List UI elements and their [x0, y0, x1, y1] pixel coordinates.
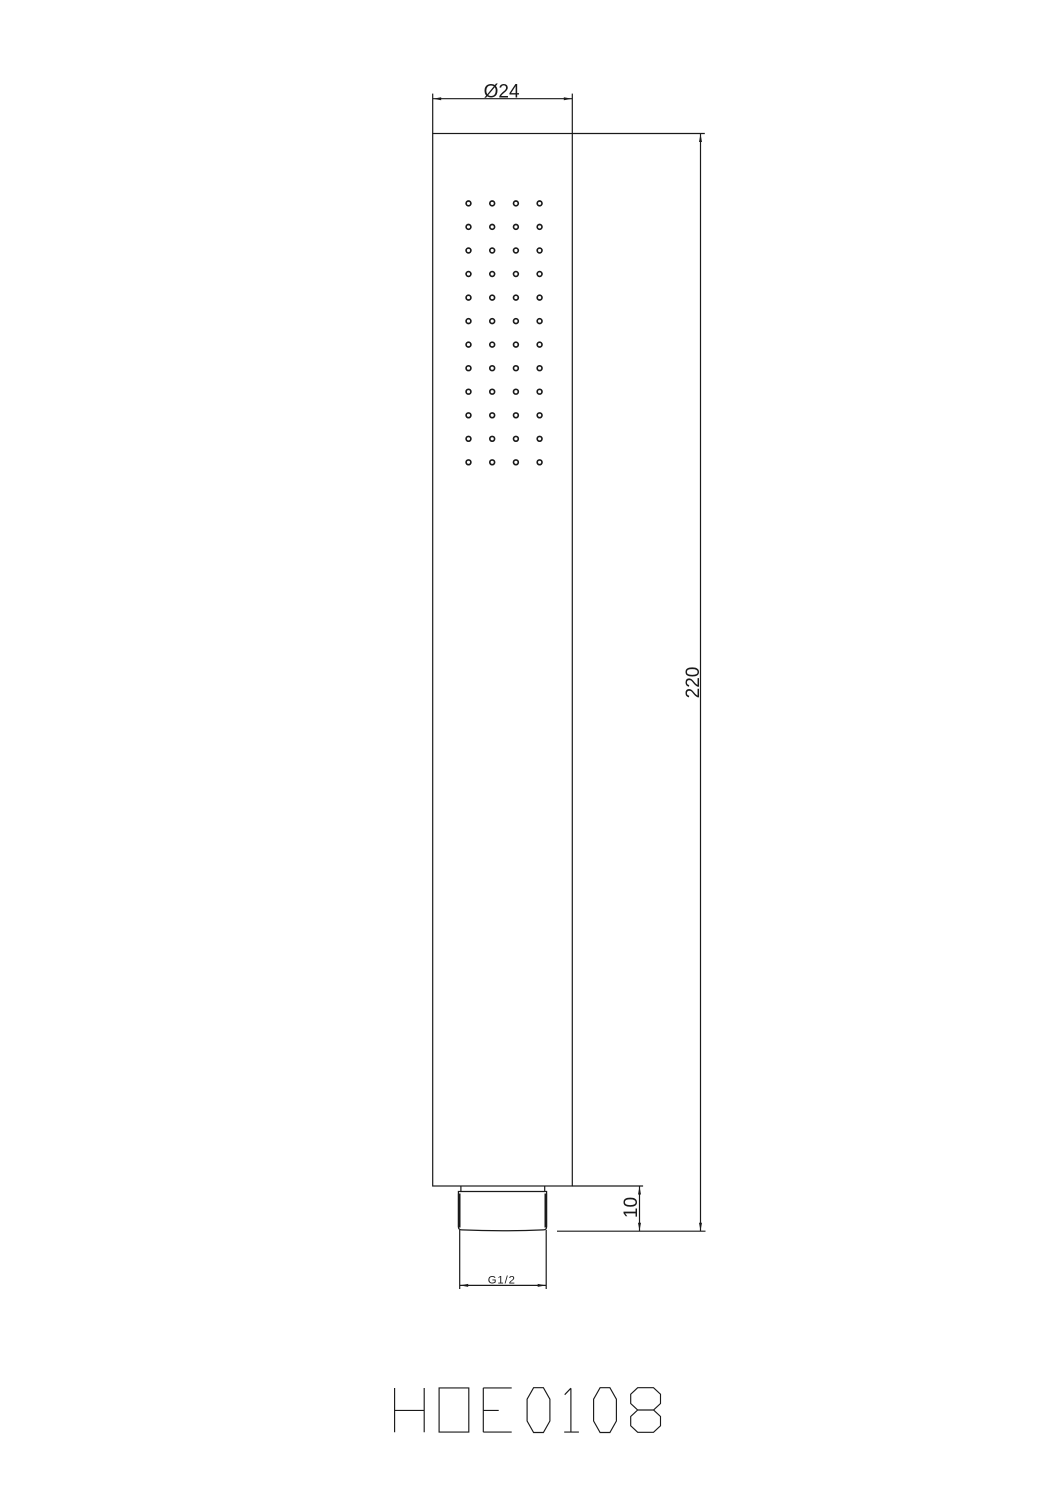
svg-text:G1/2: G1/2	[488, 1275, 516, 1287]
svg-text:Ø24: Ø24	[484, 82, 520, 103]
svg-text:10: 10	[621, 1197, 642, 1218]
svg-text:220: 220	[683, 667, 704, 699]
